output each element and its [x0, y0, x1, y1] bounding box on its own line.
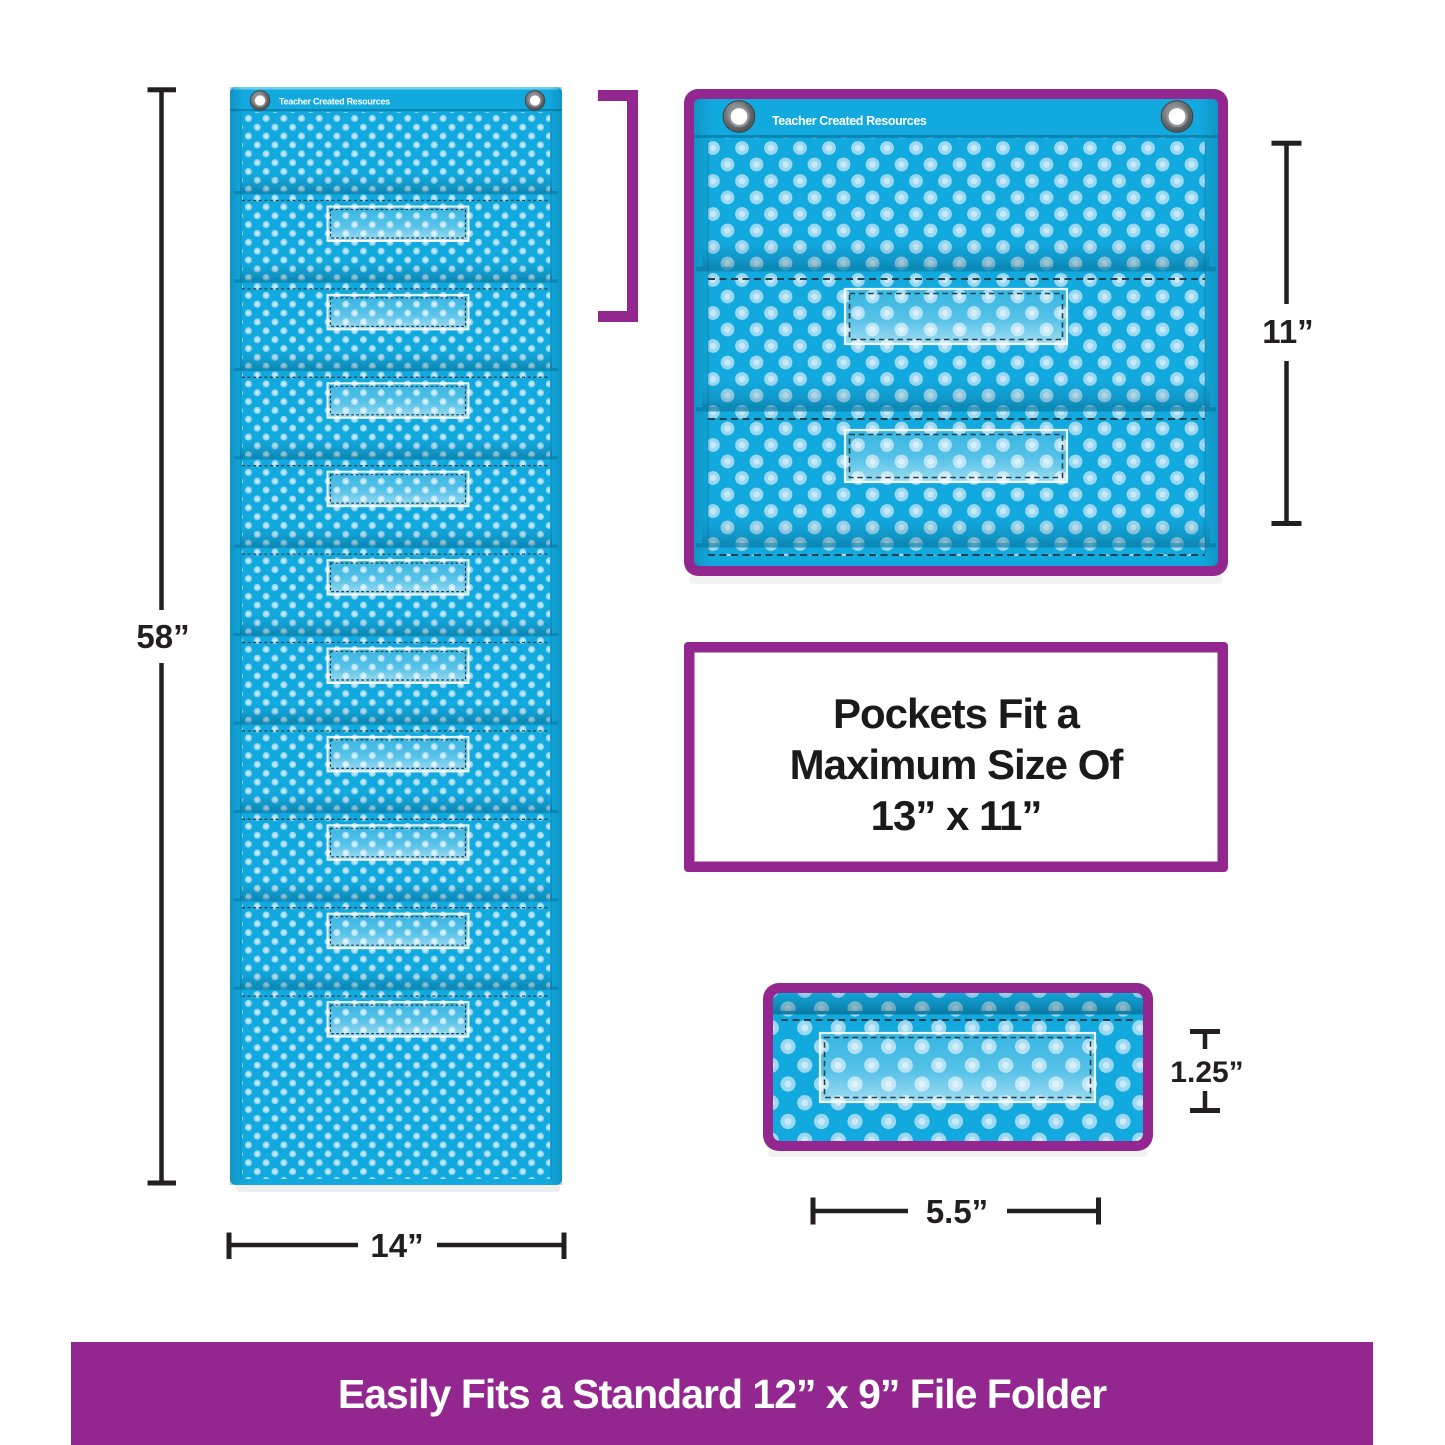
svg-text:Maximum Size Of: Maximum Size Of — [790, 741, 1125, 788]
svg-text:Teacher Created Resources: Teacher Created Resources — [279, 97, 390, 107]
svg-text:Pockets Fit a: Pockets Fit a — [833, 690, 1081, 737]
svg-text:1.25”: 1.25” — [1170, 1056, 1243, 1089]
svg-text:13” x 11”: 13” x 11” — [871, 792, 1042, 839]
svg-text:5.5”: 5.5” — [926, 1193, 988, 1230]
svg-text:Teacher Created Resources: Teacher Created Resources — [772, 114, 927, 128]
svg-text:58”: 58” — [136, 618, 189, 655]
svg-text:11”: 11” — [1262, 313, 1313, 350]
svg-text:14”: 14” — [370, 1227, 423, 1264]
svg-text:Easily Fits a Standard 12” x 9: Easily Fits a Standard 12” x 9” File Fol… — [338, 1371, 1107, 1417]
